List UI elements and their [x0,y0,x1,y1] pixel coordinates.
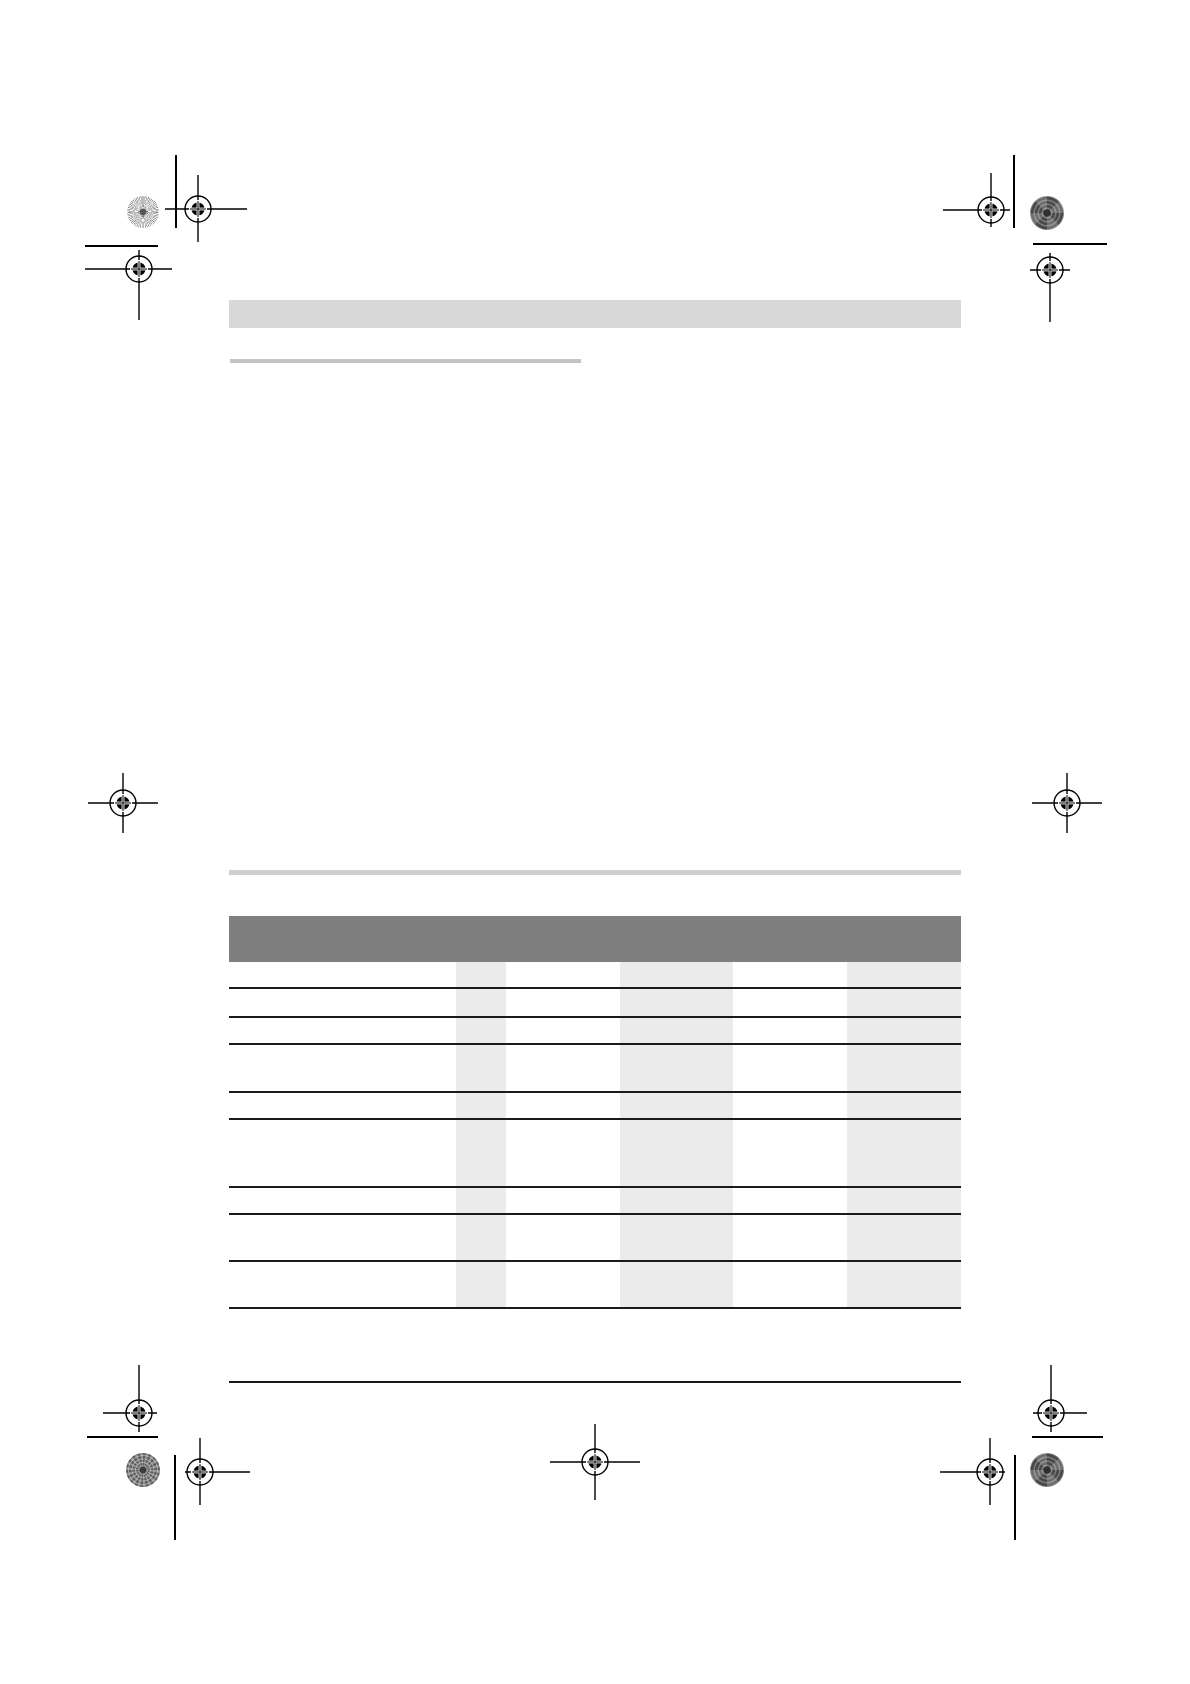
data-table-body [229,962,961,1309]
table-row-line [229,1260,961,1262]
registration-mark-icon [68,748,178,858]
table-row-line [229,1091,961,1093]
registration-mark-icon [1012,748,1122,858]
table-row-line [229,1213,961,1215]
table-header-band [229,916,961,962]
document-page [0,0,1190,1684]
registration-mark-icon [540,1407,650,1517]
registration-mark-icon [995,215,1105,325]
table-row-line [229,1016,961,1018]
table-row-line [229,1186,961,1188]
registration-mark-icon [84,214,194,324]
table-row-line [229,1043,961,1045]
footer-rule [229,1381,961,1383]
table-column-stripe [847,962,961,1309]
table-column-stripe [456,962,506,1309]
table-row-line [229,1307,961,1309]
table-row-line [229,987,961,989]
page-header-band [229,300,961,328]
section-title-underline [230,359,581,363]
section-divider-band [229,870,961,875]
table-row-line [229,1118,961,1120]
registration-mark-icon [935,1417,1045,1527]
registration-mark-icon [145,1417,255,1527]
table-column-stripe [620,962,733,1309]
